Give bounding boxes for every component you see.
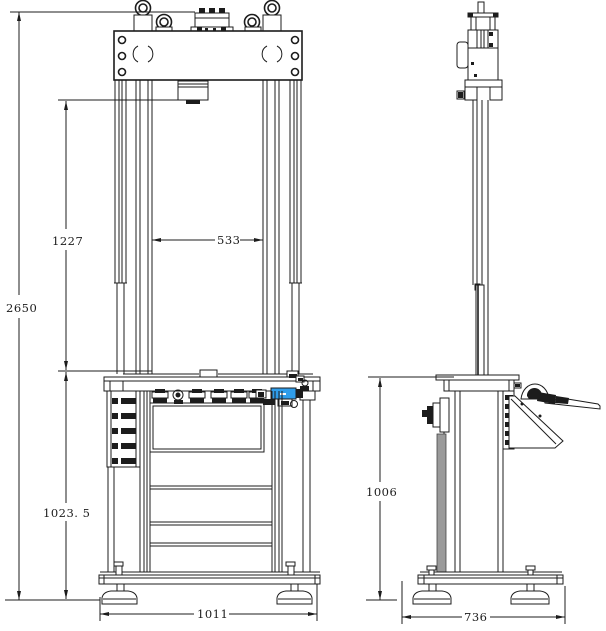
dimension-clearance-height: 1227 [52,100,198,371]
side-lever-handle [509,383,600,448]
technical-drawing-canvas: 2650 1227 533 1023. 5 [0,0,606,631]
side-actuator-head [457,2,502,100]
dimension-bench-height-front: 1023. 5 [43,372,90,599]
dimension-column-clear-width: 533 [152,233,263,247]
front-louvered-panel [107,391,140,467]
dimension-label-overall-height: 2650 [6,301,37,315]
front-load-cell [178,81,208,104]
front-specimen-window [150,403,264,452]
side-base-feet [413,566,563,604]
side-cabinet [422,375,519,572]
dimension-label-clearance-height: 1227 [52,234,83,248]
clamp-unit [173,390,183,404]
side-motor [457,42,468,68]
side-column [473,100,488,375]
side-view [413,2,600,604]
front-terminal-block [191,8,233,31]
dimension-label-base-width-front: 1011 [197,607,228,621]
front-view [99,1,320,605]
dimension-label-column-clear-width: 533 [217,233,240,247]
side-door-panel [437,434,446,572]
dimension-label-bench-height-side: 1006 [366,485,397,499]
front-crosshead-beam [114,31,302,80]
dimension-label-base-depth-side: 736 [464,610,487,624]
dimension-label-bench-height-front: 1023. 5 [43,506,90,520]
front-columns [114,80,302,374]
technical-drawing: 2650 1227 533 1023. 5 [0,0,606,631]
front-base-feet [99,562,320,604]
